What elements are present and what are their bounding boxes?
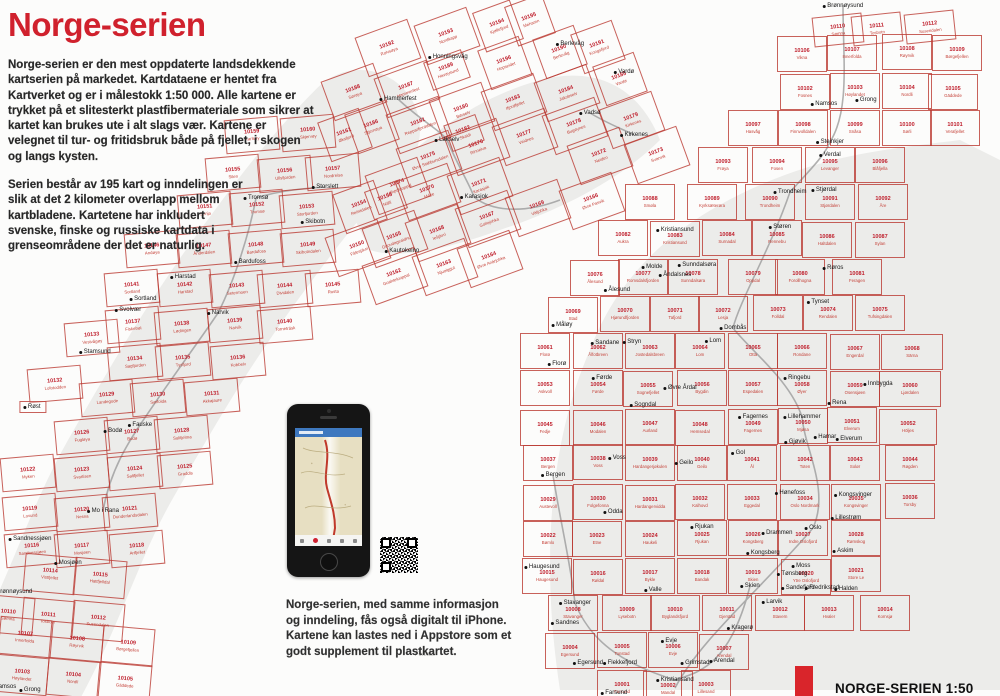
phone-home-button bbox=[320, 553, 338, 571]
intro-paragraph-1: Norge-serien er den mest oppdaterte land… bbox=[8, 58, 316, 165]
phone-toolbar-icon bbox=[327, 539, 331, 543]
phone-toolbar-icon bbox=[300, 539, 304, 543]
phone-camera-dot bbox=[327, 409, 331, 413]
footer-red-block bbox=[795, 666, 813, 696]
phone-toolbar-icon bbox=[353, 539, 357, 543]
qr-finder-pattern bbox=[381, 538, 391, 548]
brochure-page: 10192Rolvsøya10193Nordkapp10194Kjøllefjo… bbox=[0, 0, 1000, 696]
qr-finder-pattern bbox=[407, 538, 417, 548]
phone-map-screen bbox=[295, 428, 362, 546]
header: Norge-serien Norge-serien er den mest op… bbox=[8, 6, 328, 267]
phone-toolbar-icon bbox=[340, 539, 344, 543]
south-norway-land bbox=[550, 140, 1000, 690]
qr-finder-pattern bbox=[381, 562, 391, 572]
intro-paragraph-2: Serien består av 195 kart og inndelingen… bbox=[8, 178, 248, 254]
phone-caption: Norge-serien, med samme informasjon og i… bbox=[286, 598, 516, 660]
footer-label: NORGE-SERIEN 1:50 000 bbox=[835, 681, 1000, 696]
qr-code bbox=[380, 537, 418, 573]
page-title: Norge-serien bbox=[8, 6, 328, 44]
phone-locate-icon bbox=[313, 538, 318, 543]
phone-speaker-slit bbox=[320, 416, 337, 419]
phone-toolbar bbox=[295, 535, 362, 546]
iphone-image bbox=[287, 404, 370, 577]
phone-route-line bbox=[295, 428, 362, 546]
